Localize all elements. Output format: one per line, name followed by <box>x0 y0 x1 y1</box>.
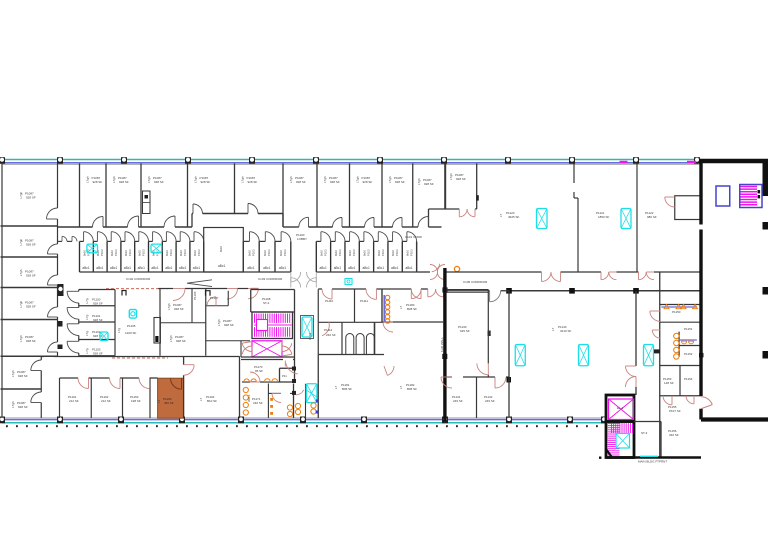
svg-text:212 SF: 212 SF <box>69 399 79 403</box>
svg-text:928 SF: 928 SF <box>26 243 36 247</box>
svg-text:P103: P103 <box>128 249 132 256</box>
svg-text:aBc1: aBc1 <box>405 266 412 270</box>
svg-text:928 SF: 928 SF <box>93 318 103 322</box>
svg-text:C103 CORRIDOR: C103 CORRIDOR <box>258 277 283 281</box>
svg-text:P103: P103 <box>142 249 146 256</box>
svg-text:L7g: L7g <box>85 298 89 303</box>
svg-text:P11: P11 <box>282 374 287 378</box>
svg-text:249 SF: 249 SF <box>453 399 463 403</box>
svg-text:928 SF: 928 SF <box>93 334 103 338</box>
svg-text:928 SF: 928 SF <box>224 323 234 327</box>
svg-text:L7gh: L7gh <box>86 176 90 183</box>
svg-text:4625 SF: 4625 SF <box>508 215 520 219</box>
svg-text:aBc1: aBc1 <box>362 266 369 270</box>
svg-text:aBc1: aBc1 <box>82 266 89 270</box>
svg-text:L7gh: L7gh <box>241 176 245 183</box>
svg-text:P103: P103 <box>114 249 118 256</box>
svg-text:C105 CORRIDOR: C105 CORRIDOR <box>463 280 488 284</box>
svg-text:928 SF: 928 SF <box>174 307 184 311</box>
svg-text:P107 SF: P107 SF <box>669 409 681 413</box>
svg-text:980 SF: 980 SF <box>647 215 657 219</box>
svg-text:P103: P103 <box>352 249 356 256</box>
svg-text:L7gh: L7gh <box>169 335 173 342</box>
svg-text:aBc1: aBc1 <box>348 266 355 270</box>
svg-text:L7gh: L7gh <box>289 176 293 183</box>
svg-text:928 SF: 928 SF <box>363 180 373 184</box>
svg-text:95 SF: 95 SF <box>255 369 263 373</box>
svg-text:928 SF: 928 SF <box>330 180 340 184</box>
svg-text:aBc1: aBc1 <box>124 266 131 270</box>
svg-text:aBc1: aBc1 <box>391 266 398 270</box>
svg-text:C104: C104 <box>308 332 312 340</box>
svg-text:L7gh: L7gh <box>19 238 23 245</box>
svg-text:928 SF: 928 SF <box>93 180 103 184</box>
svg-text:B10 SF: B10 SF <box>207 399 217 403</box>
svg-text:L7gh: L7gh <box>217 319 221 326</box>
svg-text:P1112: P1112 <box>324 328 333 332</box>
svg-text:aBc1: aBc1 <box>138 266 145 270</box>
svg-text:L7gh: L7gh <box>356 176 360 183</box>
svg-text:aBc1: aBc1 <box>263 266 270 270</box>
svg-text:aBc1: aBc1 <box>279 266 286 270</box>
svg-text:240 SF: 240 SF <box>253 401 263 405</box>
svg-text:ST-3: ST-3 <box>641 431 648 435</box>
svg-text:L7gh: L7gh <box>19 300 23 307</box>
svg-text:P103: P103 <box>366 249 370 256</box>
svg-text:C102 CORRIDOR: C102 CORRIDOR <box>126 277 151 281</box>
svg-text:WR-1: WR-1 <box>247 394 251 402</box>
svg-text:P103: P103 <box>323 249 327 256</box>
svg-text:928 SF: 928 SF <box>176 339 186 343</box>
svg-text:P103: P103 <box>381 249 385 256</box>
svg-text:P103: P103 <box>100 249 104 256</box>
svg-text:aBc1: aBc1 <box>110 266 117 270</box>
svg-text:928 SF: 928 SF <box>424 182 434 186</box>
svg-text:625 SF: 625 SF <box>460 329 470 333</box>
svg-text:L7: L7 <box>399 385 403 389</box>
svg-text:928 SF: 928 SF <box>26 339 36 343</box>
svg-text:B28 SF: B28 SF <box>407 307 417 311</box>
svg-text:L7: L7 <box>499 213 503 217</box>
svg-text:L7gh: L7gh <box>147 176 151 183</box>
svg-text:L7g: L7g <box>85 314 89 319</box>
svg-text:P103: P103 <box>267 249 271 256</box>
svg-text:240 SF: 240 SF <box>326 333 336 337</box>
svg-text:928 SF: 928 SF <box>201 180 211 184</box>
svg-text:928 SF: 928 SF <box>296 180 306 184</box>
svg-text:L7gh: L7gh <box>19 335 23 342</box>
svg-text:L7gh: L7gh <box>417 178 421 185</box>
svg-text:P1152: P1152 <box>684 352 693 356</box>
svg-text:aBc1: aBc1 <box>96 266 103 270</box>
svg-text:B05 SF: B05 SF <box>407 387 417 391</box>
svg-text:L7: L7 <box>399 305 403 309</box>
svg-text:928 SF: 928 SF <box>26 305 36 309</box>
svg-text:928 SF: 928 SF <box>456 177 466 181</box>
svg-text:L7gh: L7gh <box>11 370 15 377</box>
svg-text:L7: L7 <box>157 399 161 403</box>
svg-text:aBc1: aBc1 <box>377 266 384 270</box>
svg-text:LOBBY: LOBBY <box>297 237 307 241</box>
svg-text:1HR WALL: 1HR WALL <box>440 337 444 352</box>
svg-text:L7gh: L7gh <box>388 176 392 183</box>
svg-text:340 SF: 340 SF <box>669 433 679 437</box>
svg-text:1850 SF: 1850 SF <box>598 215 610 219</box>
svg-text:L7gh: L7gh <box>323 176 327 183</box>
svg-text:P1151: P1151 <box>684 327 693 331</box>
svg-text:L7gh: L7gh <box>449 173 453 180</box>
svg-text:P1110: P1110 <box>325 299 334 303</box>
svg-text:P1105: P1105 <box>127 324 136 328</box>
svg-text:L7: L7 <box>551 327 555 331</box>
svg-text:P103: P103 <box>283 249 287 256</box>
svg-text:C101 CORR: C101 CORR <box>405 235 423 239</box>
svg-text:L7gh: L7gh <box>167 303 171 310</box>
svg-text:P1154: P1154 <box>684 377 693 381</box>
svg-text:928 SF: 928 SF <box>119 180 129 184</box>
svg-text:ST-2: ST-2 <box>263 301 270 305</box>
svg-text:L7gh: L7gh <box>19 191 23 198</box>
svg-text:928 SF: 928 SF <box>93 352 103 356</box>
svg-text:P103: P103 <box>395 249 399 256</box>
svg-text:L7g: L7g <box>117 328 121 333</box>
svg-text:P103: P103 <box>183 249 187 256</box>
svg-text:P103: P103 <box>338 249 342 256</box>
svg-text:aBc1: aBc1 <box>319 266 326 270</box>
svg-text:aBc1: aBc1 <box>151 266 158 270</box>
svg-text:P103: P103 <box>169 249 173 256</box>
svg-text:212 SF: 212 SF <box>101 399 111 403</box>
svg-text:928 SF: 928 SF <box>248 180 258 184</box>
svg-text:1200 SF: 1200 SF <box>125 331 137 335</box>
svg-text:P1107: P1107 <box>210 296 219 300</box>
svg-text:L7gh: L7gh <box>11 401 15 408</box>
svg-text:B05 SF: B05 SF <box>342 387 352 391</box>
svg-text:198 SF: 198 SF <box>131 399 141 403</box>
svg-text:8x10: 8x10 <box>219 245 223 252</box>
svg-text:L7g: L7g <box>85 348 89 353</box>
svg-text:aBc1: aBc1 <box>179 266 186 270</box>
svg-text:P1150: P1150 <box>672 310 681 314</box>
svg-text:aBc1: aBc1 <box>218 264 225 268</box>
svg-text:928 SF: 928 SF <box>93 302 103 306</box>
svg-text:P1106: P1106 <box>193 291 197 300</box>
svg-text:MAIN BLDG FTPRNT: MAIN BLDG FTPRNT <box>638 460 667 464</box>
svg-text:aBc1: aBc1 <box>193 266 200 270</box>
svg-text:148 SF: 148 SF <box>664 381 674 385</box>
svg-text:aBc1: aBc1 <box>165 266 172 270</box>
svg-text:P1111: P1111 <box>360 299 368 303</box>
svg-text:249 SF: 249 SF <box>485 399 495 403</box>
svg-text:928 SF: 928 SF <box>18 405 28 409</box>
svg-text:L7gh: L7gh <box>19 269 23 276</box>
svg-text:L7: L7 <box>334 385 338 389</box>
svg-text:928 SF: 928 SF <box>26 273 36 277</box>
svg-text:L7g: L7g <box>85 331 89 336</box>
svg-text:P103: P103 <box>251 249 255 256</box>
svg-text:3210 SF: 3210 SF <box>560 329 572 333</box>
svg-text:L7gh: L7gh <box>194 176 198 183</box>
svg-text:928 SF: 928 SF <box>18 374 28 378</box>
svg-text:450 SF: 450 SF <box>164 401 174 405</box>
svg-text:P103: P103 <box>197 249 201 256</box>
svg-text:928 SF: 928 SF <box>154 180 164 184</box>
svg-text:P103: P103 <box>409 249 413 256</box>
svg-text:L7: L7 <box>199 397 203 401</box>
svg-text:L7gh: L7gh <box>112 176 116 183</box>
svg-text:aBc1: aBc1 <box>334 266 341 270</box>
svg-text:928 SF: 928 SF <box>26 196 36 200</box>
svg-text:EL-2: EL-2 <box>617 406 624 410</box>
svg-text:928 SF: 928 SF <box>395 180 405 184</box>
svg-text:aBc1: aBc1 <box>247 266 254 270</box>
